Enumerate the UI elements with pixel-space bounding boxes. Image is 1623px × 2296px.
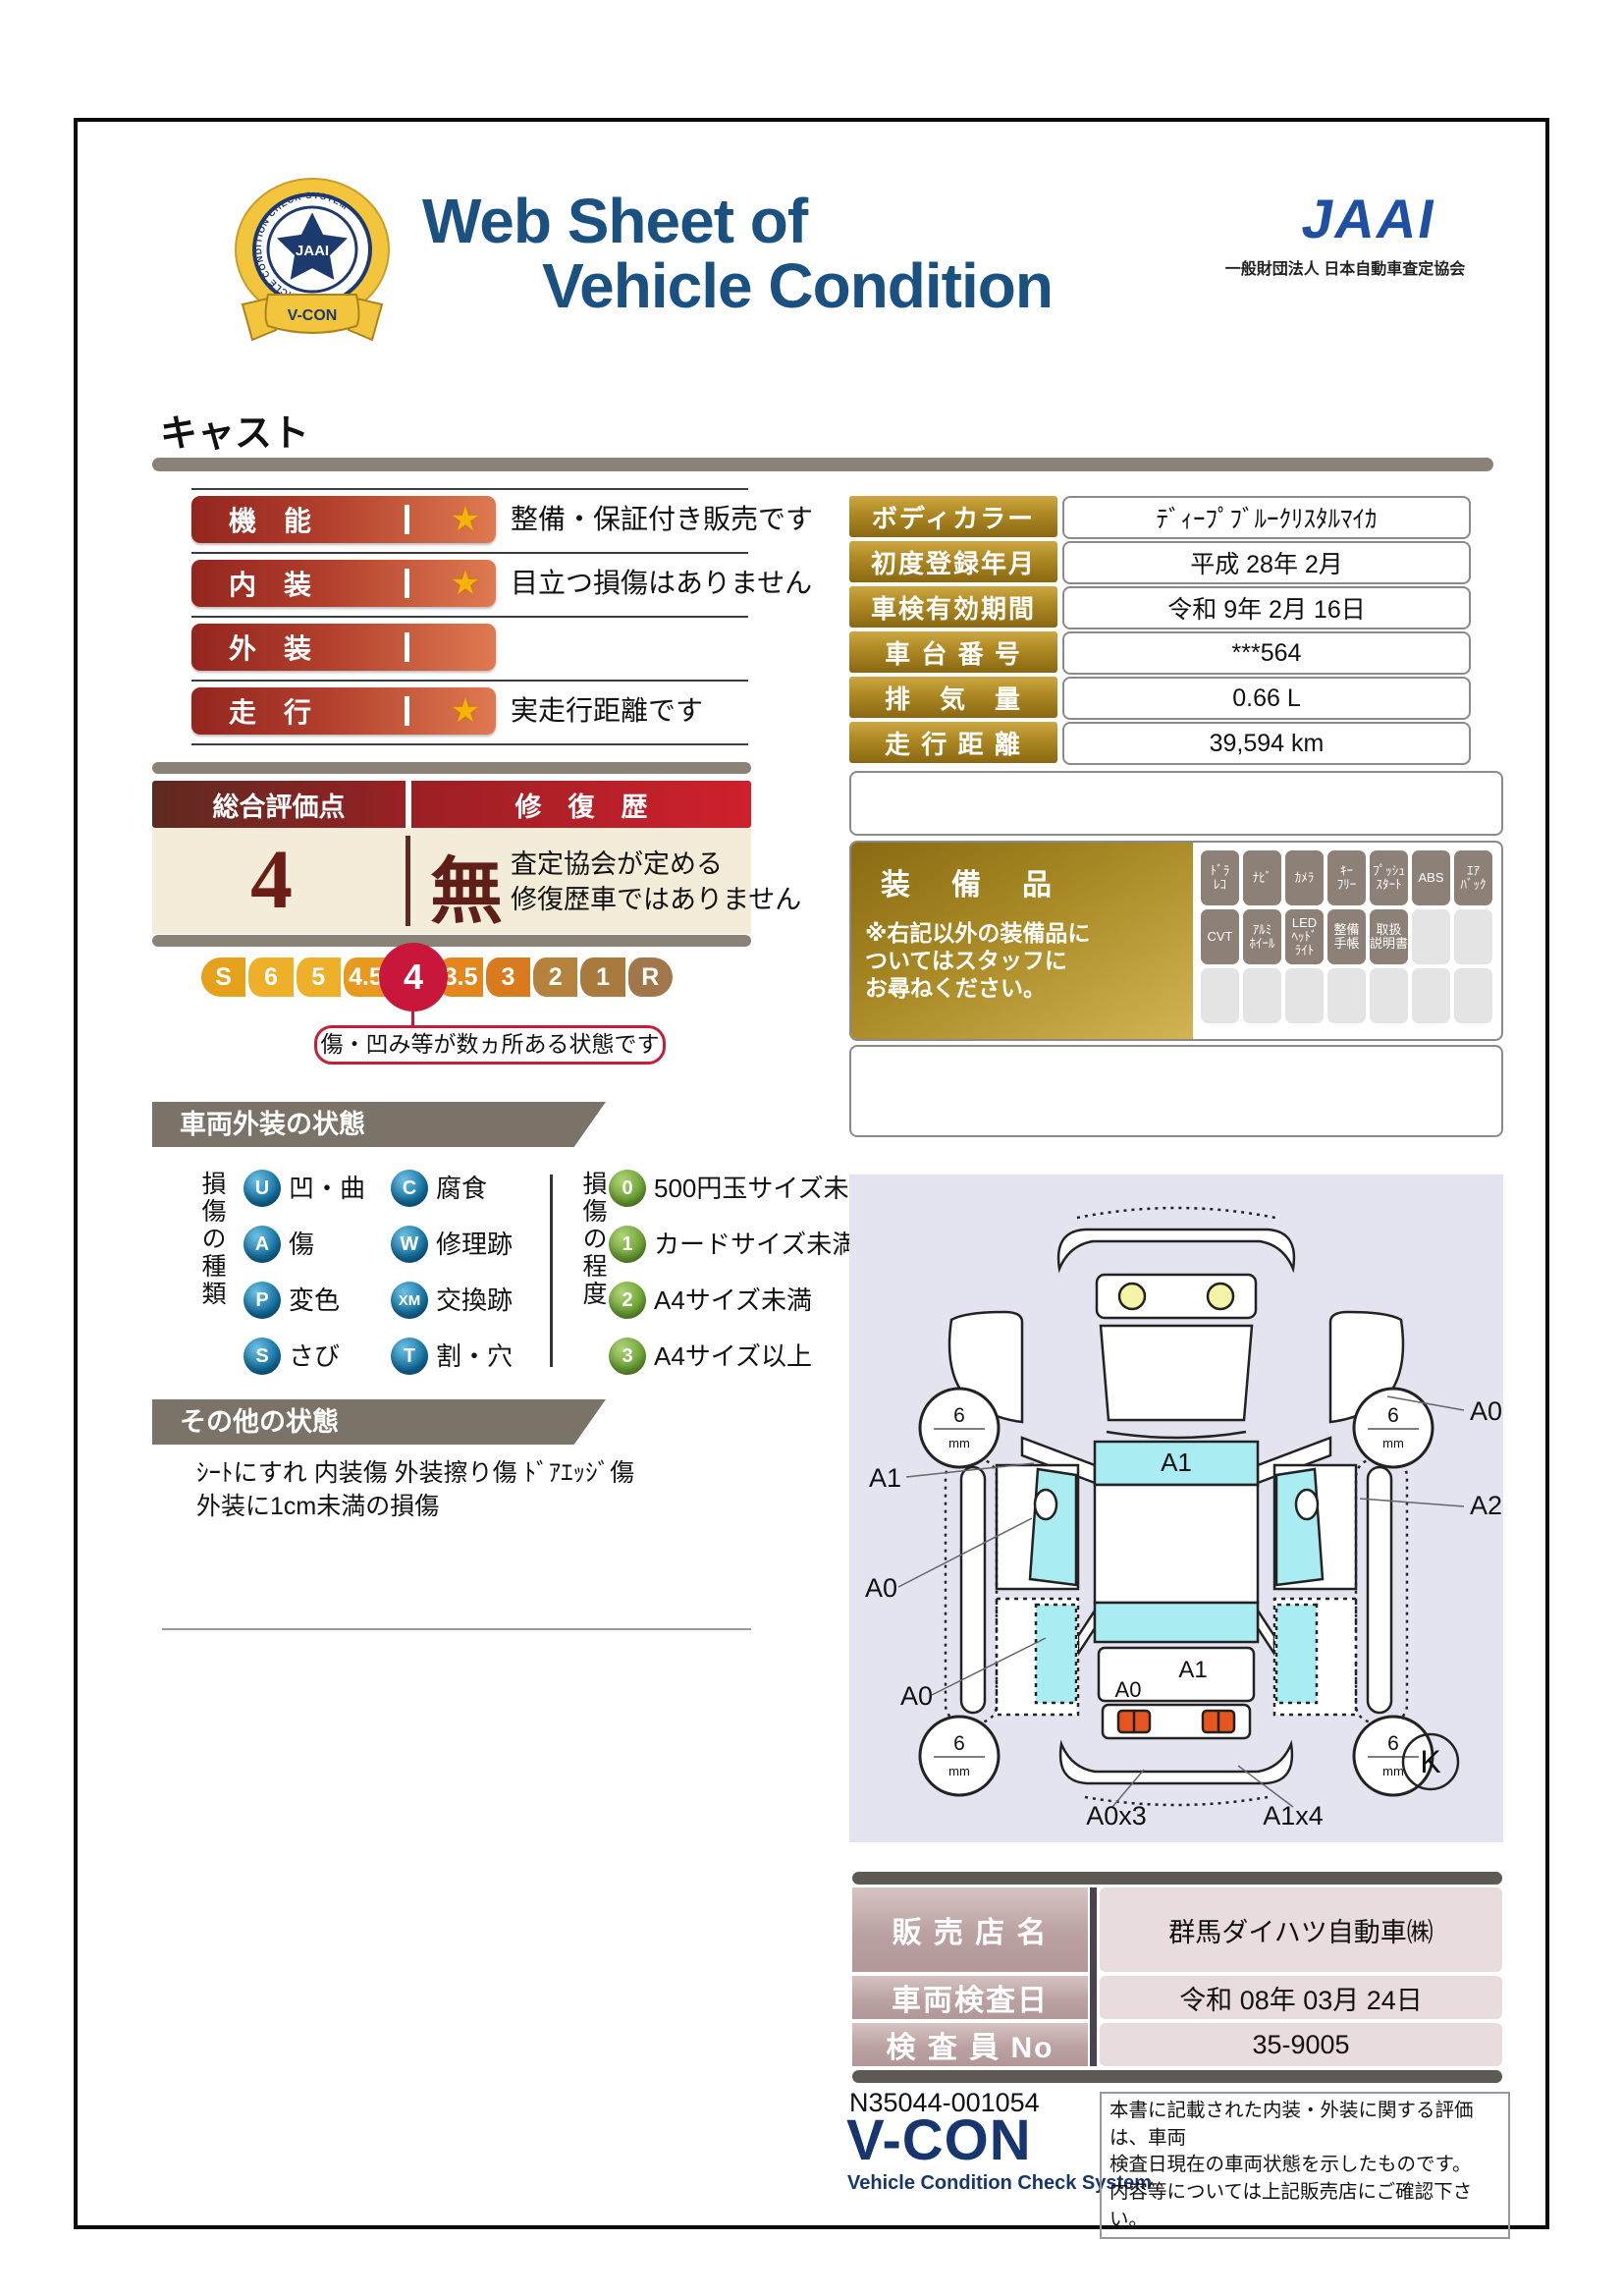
equip-cell-empty [1412, 968, 1450, 1023]
dealer-table-separator [1090, 1887, 1097, 2066]
grade-seg-6: 6 [245, 957, 293, 997]
damage-degree-icon-2: 2 [609, 1282, 646, 1319]
car-damage-diagram: 6 6 6 6 mm mm mm mm [849, 1175, 1503, 1842]
tire-tread-value: 6 [953, 1732, 965, 1755]
damage-type-icon-c: C [391, 1170, 428, 1207]
rating-separator [191, 680, 748, 682]
rating-separator [191, 743, 748, 745]
tire-tread-value: 6 [1387, 1732, 1399, 1755]
tab-exterior-condition: 車両外装の状態 [152, 1102, 606, 1147]
damage-type-icon-p: P [243, 1282, 281, 1319]
repair-history-value: 無 [430, 833, 503, 938]
equip-cell-ledheadlight: LED ﾍｯﾄﾞ ﾗｲﾄ [1285, 909, 1324, 964]
equipment-title: 装 備 品 [881, 860, 1057, 903]
damage-type-label: 割・穴 [436, 1338, 513, 1375]
left-column-end-line [162, 1628, 751, 1630]
overall-score-header: 総合評価点 修 復 歴 [152, 781, 751, 828]
equip-cell-cvt: CVT [1201, 909, 1239, 964]
detail-label: 車検有効期間 [849, 586, 1057, 628]
emblem-center-text: JAAI [296, 243, 329, 259]
detail-value: ***564 [1062, 631, 1471, 675]
equip-cell-navi: ﾅﾋﾞ [1243, 850, 1281, 905]
damage-degree-icon-1: 1 [609, 1226, 646, 1263]
rating-separator [191, 488, 748, 490]
callout-pointer-line [411, 1011, 414, 1025]
inspector-stamp-mark: K [1420, 1744, 1440, 1779]
detail-label: ボディカラー [849, 496, 1057, 537]
footer-disclaimer: 本書に記載された内装・外装に関する評価は、車両 検査日現在の車両状態を示したもの… [1100, 2092, 1510, 2239]
rating-separator-bar [405, 632, 409, 662]
damage-label-bottom-2: A1x4 [1263, 1801, 1324, 1831]
damage-type-label: 腐食 [436, 1170, 487, 1207]
roof-panel [1095, 1485, 1258, 1603]
overall-score-value: 4 [250, 830, 293, 928]
tire-tread-unit: mm [948, 1436, 970, 1450]
damage-type-label: 修理跡 [436, 1226, 513, 1263]
equip-cell-empty [1243, 968, 1281, 1023]
notes-empty-box [849, 771, 1503, 836]
equipment-gold-bg: 装 備 品 ※右記以外の装備品に ついてはスタッフに お尋ねください。 [851, 843, 1193, 1039]
damage-type-icon-u: U [243, 1170, 281, 1207]
tire-tread-value: 6 [1387, 1404, 1399, 1427]
legend-divider [550, 1175, 553, 1367]
equip-cell-keyfree: ｷｰ ﾌﾘｰ [1327, 850, 1366, 905]
damage-type-icon-w: W [391, 1226, 428, 1263]
dealer-name-label: 販 売 店 名 [852, 1887, 1088, 1972]
vcon-logo: V-CON [846, 2107, 1032, 2173]
equip-cell-airbag: ｴｱ ﾊﾞｯｸ [1454, 850, 1492, 905]
damage-type-header: 損傷の種類 [194, 1171, 230, 1367]
vcon-emblem-icon: VEHICLE CONDITION CHECK SYSTEM JAAI V-CO… [228, 175, 397, 350]
grade-seg-s: S [201, 957, 245, 997]
damage-degree-label: 500円玉サイズ未満 [654, 1170, 875, 1207]
damage-degree-icon-3: 3 [609, 1338, 646, 1375]
rating-label: 機 能 [191, 500, 405, 539]
damage-label-tailgate: A1 [1178, 1657, 1207, 1683]
grade-seg-5: 5 [294, 957, 341, 997]
damage-degree-icon-0: 0 [609, 1170, 646, 1207]
tire-tread-unit: mm [1382, 1764, 1404, 1778]
equip-cell-dashcam: ﾄﾞﾗ ﾚｺ [1201, 850, 1239, 905]
detail-value: 平成 28年 2月 [1062, 541, 1471, 584]
inspection-date-value: 令和 08年 03月 24日 [1100, 1976, 1502, 2019]
rating-separator-bar [405, 696, 409, 726]
equip-cell-empty [1370, 968, 1408, 1023]
header-divider [152, 458, 1493, 471]
damage-label-left-1: A1 [869, 1463, 901, 1493]
other-condition-text: ｼｰﾄにすれ 内装傷 外装擦り傷 ﾄﾞｱｴｯｼﾞ傷 外装に1cm未満の損傷 [196, 1457, 634, 1524]
inspection-date-label: 車両検査日 [852, 1976, 1088, 2019]
equip-cell-alloywheel: ｱﾙﾐ ﾎｲｰﾙ [1243, 909, 1281, 964]
rating-note: 実走行距離です [511, 687, 703, 735]
equip-cell-empty [1454, 968, 1492, 1023]
equip-cell-empty [1285, 968, 1324, 1023]
section-divider [152, 762, 751, 774]
repair-history-note: 査定協会が定める 修復歴車ではありません [511, 847, 801, 918]
damage-type-label: 交換跡 [436, 1282, 513, 1319]
dealer-table-top-bar [852, 1872, 1502, 1885]
rating-label: 外 装 [191, 628, 405, 667]
rating-label: 走 行 [191, 691, 405, 731]
damage-label-right-1: A0 [1470, 1396, 1502, 1426]
rating-separator-bar [405, 569, 409, 598]
tab-other-condition: その他の状態 [152, 1399, 606, 1445]
notes-empty-box [849, 1045, 1503, 1137]
vehicle-condition-sheet: VEHICLE CONDITION CHECK SYSTEM JAAI V-CO… [0, 0, 1623, 2296]
emblem-banner-text: V-CON [288, 307, 338, 324]
repair-history-title: 修 復 歴 [411, 786, 751, 824]
section-divider [152, 935, 751, 947]
damage-type-icon-s: S [243, 1338, 281, 1375]
tire-tread-unit: mm [1382, 1436, 1404, 1450]
inspector-no-label: 検 査 員 No [852, 2023, 1088, 2066]
detail-value: 0.66 L [1062, 677, 1471, 720]
headlight-icon [1119, 1284, 1145, 1309]
damage-label-left-2: A0 [865, 1573, 897, 1603]
jaai-logo: JAAI [1261, 187, 1478, 250]
dealer-table-bottom-bar [852, 2070, 1502, 2083]
damage-type-icon-xm: XM [391, 1282, 428, 1319]
damage-degree-label: カードサイズ未満 [654, 1226, 857, 1263]
rating-row-exterior: 外 装 [191, 624, 496, 671]
damage-label-tailgate-corner: A0 [1115, 1677, 1142, 1702]
rear-glass-panel [1095, 1603, 1258, 1642]
equip-cell-empty [1327, 968, 1366, 1023]
damage-label-left-3: A0 [900, 1681, 933, 1711]
detail-label: 車 台 番 号 [849, 631, 1057, 673]
rating-row-interior: 内 装 ★ [191, 560, 496, 607]
equip-cell-empty [1412, 909, 1450, 964]
damage-degree-header: 損傷の程度 [575, 1171, 611, 1367]
damage-type-label: さび [289, 1338, 340, 1375]
star-icon: ★ [435, 564, 496, 603]
grade-seg-1: 1 [577, 957, 624, 997]
damage-label-windshield: A1 [1161, 1448, 1192, 1477]
rating-separator-bar [405, 505, 409, 534]
equip-cell-abs: ABS [1412, 850, 1450, 905]
star-icon: ★ [435, 500, 496, 539]
damage-degree-label: A4サイズ未満 [654, 1282, 812, 1319]
damage-type-icon-t: T [391, 1338, 428, 1375]
damage-degree-label: A4サイズ以上 [654, 1338, 812, 1375]
grade-callout: 傷・凹み等が数ヵ所ある状態です [314, 1025, 666, 1065]
equipment-panel: 装 備 品 ※右記以外の装備品に ついてはスタッフに お尋ねください。 ﾄﾞﾗ … [849, 841, 1503, 1041]
damage-type-label: 変色 [289, 1282, 340, 1319]
damage-type-icon-a: A [243, 1226, 281, 1263]
rating-label: 内 装 [191, 564, 405, 603]
equipment-note: ※右記以外の装備品に ついてはスタッフに お尋ねください。 [865, 919, 1090, 1002]
detail-value: 令和 9年 2月 16日 [1062, 586, 1471, 629]
page-title-line2: Vehicle Condition [542, 249, 1053, 322]
detail-value: 39,594 km [1062, 722, 1471, 765]
page-title-line1: Web Sheet of [422, 185, 807, 257]
damage-type-label: 凹・曲 [289, 1170, 365, 1207]
vehicle-name: キャスト [160, 403, 309, 457]
damage-label-bottom-1: A0x3 [1086, 1801, 1147, 1831]
tire-tread-unit: mm [948, 1764, 970, 1778]
star-icon: ★ [435, 691, 496, 731]
hood-panel [1101, 1326, 1252, 1420]
jaai-subtitle: 一般財団法人 日本自動車査定協会 [1217, 255, 1473, 279]
rating-separator [191, 552, 748, 554]
rating-note: 整備・保証付き販売です [511, 496, 813, 543]
grade-seg-3: 3 [483, 957, 530, 997]
rating-separator [191, 616, 748, 618]
rating-note: 目立つ損傷はありません [511, 560, 812, 607]
equip-cell-pushstart: ﾌﾟｯｼｭ ｽﾀｰﾄ [1370, 850, 1408, 905]
dealer-name-value: 群馬ダイハツ自動車㈱ [1100, 1887, 1502, 1972]
overall-score-title: 総合評価点 [152, 786, 406, 824]
selected-grade-badge: 4 [379, 943, 448, 1011]
rating-row-function: 機 能 ★ [191, 496, 496, 543]
detail-label: 排 気 量 [849, 677, 1057, 718]
rating-row-mileage: 走 行 ★ [191, 687, 496, 735]
equip-cell-manual: 取扱 説明書 [1370, 909, 1408, 964]
detail-value: ﾃﾞｨｰﾌﾟﾌﾞﾙｰｸﾘｽﾀﾙﾏｲｶ [1062, 496, 1471, 539]
headlight-icon [1208, 1284, 1233, 1309]
inspector-no-value: 35-9005 [1100, 2023, 1502, 2066]
damage-label-right-2: A2 [1470, 1491, 1502, 1520]
equip-cell-empty [1454, 909, 1492, 964]
detail-label: 初度登録年月 [849, 541, 1057, 582]
tire-tread-value: 6 [953, 1404, 965, 1427]
equip-cell-camera: ｶﾒﾗ [1285, 850, 1324, 905]
damage-type-label: 傷 [289, 1226, 314, 1263]
grade-seg-2: 2 [530, 957, 577, 997]
grade-seg-r: R [625, 957, 673, 997]
equipment-grid: ﾄﾞﾗ ﾚｺ ﾅﾋﾞ ｶﾒﾗ ｷｰ ﾌﾘｰ ﾌﾟｯｼｭ ｽﾀｰﾄ ABS ｴｱ … [1199, 848, 1499, 1025]
score-divider [406, 836, 410, 926]
equip-cell-empty [1201, 968, 1239, 1023]
detail-label: 走 行 距 離 [849, 722, 1057, 763]
equip-cell-servicebook: 整備 手帳 [1327, 909, 1366, 964]
